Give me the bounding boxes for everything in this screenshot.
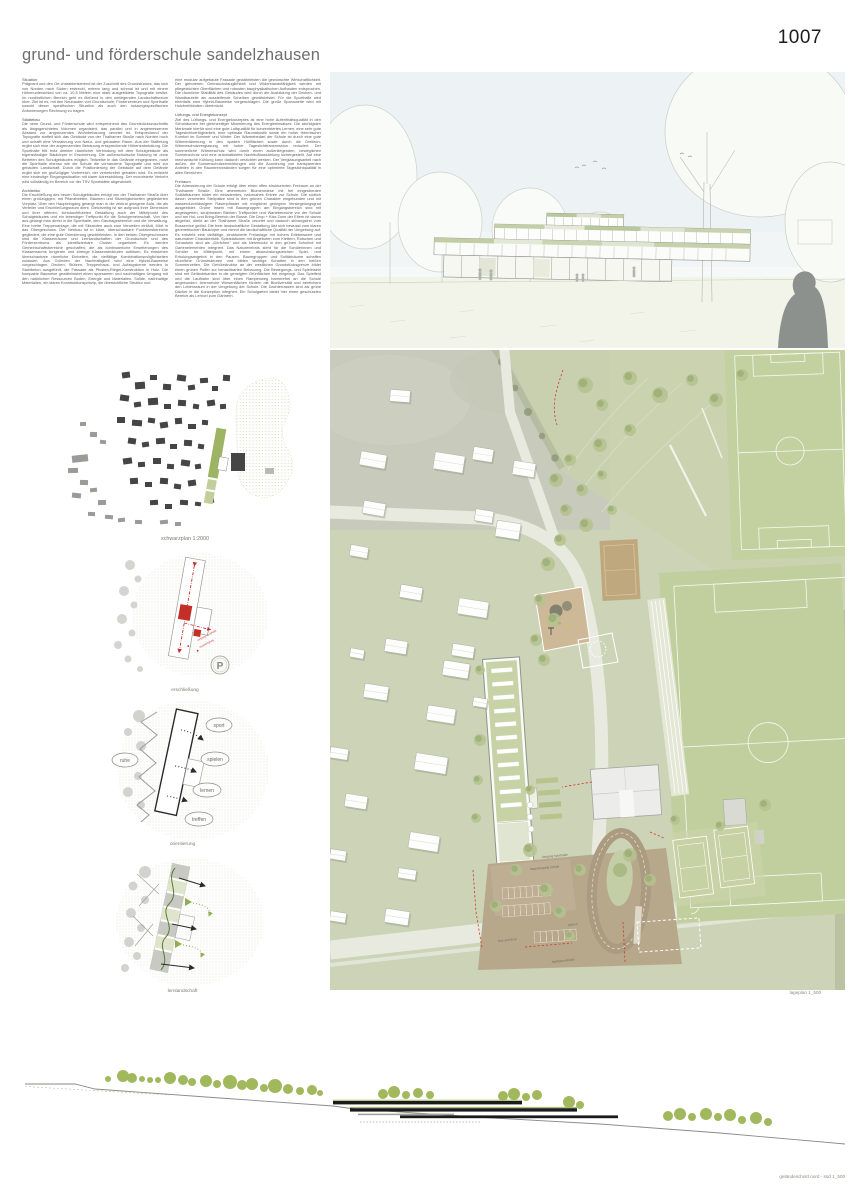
- tennis-courts: [666, 822, 766, 907]
- main-entry-marker: [193, 629, 201, 637]
- building-section-bars: [333, 1100, 618, 1118]
- zone-sport: sport: [213, 723, 225, 729]
- perspective-rendering: [330, 72, 845, 348]
- section-caption: geländeschnitt nord - süd 1_500: [520, 1174, 845, 1179]
- zone-spielen: spielen: [207, 757, 223, 763]
- erschliessung-svg: eingang sporthalle haupteingang P: [100, 553, 270, 688]
- lernlandschaft-svg: [95, 856, 270, 989]
- schwarzplan-caption: schwarzplan 1:2000: [60, 536, 310, 542]
- terrain-section: [20, 1054, 845, 1166]
- zone-ruhe: ruhe: [120, 758, 130, 764]
- parking-icon: P: [211, 656, 229, 674]
- reference-line: [25, 1087, 170, 1096]
- orientierung-caption: orientierung: [95, 842, 270, 847]
- orientierung-svg: ruhe sport spielen lernen treffen: [95, 698, 270, 844]
- football-field-north: [724, 350, 845, 560]
- text-column-2: eine modular aufgebaute Fassade gewährle…: [175, 78, 321, 299]
- entry-number: 1007: [778, 27, 822, 49]
- access-diagram: eingang sporthalle haupteingang P: [100, 553, 270, 688]
- figure-ground-diagram: [60, 360, 310, 538]
- page-title: grund- und förderschule sandelzhausen: [22, 46, 320, 65]
- learning-landscape-diagram: [95, 856, 270, 989]
- section-body: Ziel des Lüftungs- und Energiekonzeptes …: [175, 118, 321, 175]
- section-svg: [20, 1054, 845, 1166]
- background-house: [798, 220, 832, 244]
- svg-text:P: P: [217, 661, 224, 672]
- text-section-architektur: Architektur Die Erschließung des neuen S…: [22, 189, 168, 286]
- rendering-svg: [330, 72, 845, 348]
- tsv-hall: [590, 765, 661, 820]
- new-school-green-strip: [203, 428, 233, 506]
- competition-board: 1007 grund- und förderschule sandelzhaus…: [0, 0, 849, 1200]
- text-section-continuation: eine modular aufgebaute Fassade gewährle…: [175, 78, 321, 109]
- section-body: eine modular aufgebaute Fassade gewährle…: [175, 78, 321, 109]
- erschliessung-caption: erschließung: [100, 688, 270, 693]
- project-description: Situation Prägnant und den Ort charakter…: [22, 78, 321, 299]
- text-section-situation: Situation Prägnant und den Ort charakter…: [22, 78, 168, 113]
- text-section-staedtebau: Städtebau Die neue Grund- und Förderschu…: [22, 118, 168, 184]
- site-plan-svg: thalhamerstraße kiss and drop parken ein…: [330, 350, 845, 990]
- site-plan: thalhamerstraße kiss and drop parken ein…: [330, 350, 845, 990]
- sports-court: [599, 539, 640, 601]
- section-body: Die neue Grund- und Förderschule wird en…: [22, 122, 168, 184]
- text-column-1: Situation Prägnant und den Ort charakter…: [22, 78, 168, 299]
- zone-treffen: treffen: [192, 817, 206, 823]
- landscape-dot-field: [236, 378, 293, 497]
- context-dot-field: [116, 858, 264, 986]
- tsv-hall-black: [231, 453, 245, 471]
- section-body: Prägnant und den Ort charakterisierend i…: [22, 82, 168, 113]
- text-section-freiraum: Freiraum Die Adressierung der Schule erf…: [175, 180, 321, 299]
- schwarzplan-svg: [60, 360, 310, 538]
- zone-lernen: lernen: [200, 788, 214, 794]
- site-plan-caption: lageplan 1_500: [330, 990, 821, 995]
- section-body: Die Adressierung der Schule erfolgt über…: [175, 184, 321, 299]
- lernlandschaft-caption: lernlandschaft: [95, 989, 270, 994]
- section-body: Die Erschließung des neuen Schulgebäudes…: [22, 193, 168, 286]
- outbuilding: [723, 798, 747, 825]
- text-section-energiekonzept: Lüftungs- und Energiekonzept Ziel des Lü…: [175, 113, 321, 175]
- orientation-diagram: ruhe sport spielen lernen treffen: [95, 698, 270, 844]
